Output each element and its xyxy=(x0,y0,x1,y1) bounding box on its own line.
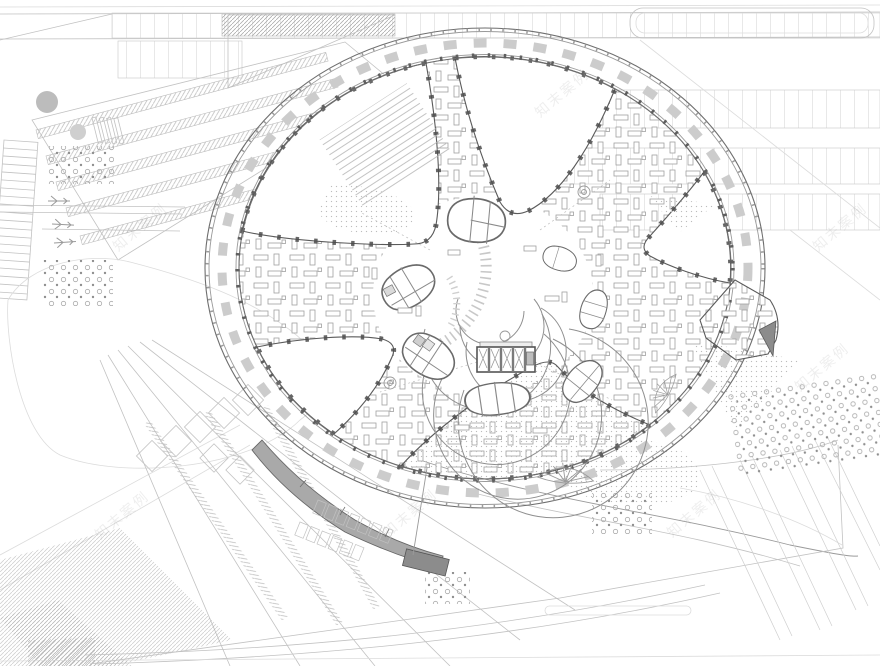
tree-grid xyxy=(43,260,113,306)
tree-canopy-circle xyxy=(36,91,58,113)
tree-grid xyxy=(48,146,114,184)
floor-plan-drawing: 知末案例 知末案例 知末案例 知末案例 知末案例 知末案例 知末案例 xyxy=(0,0,880,666)
core-shaft xyxy=(527,352,534,365)
elevator-core xyxy=(477,342,535,372)
tree-canopy-circle xyxy=(70,124,86,140)
site-plan-page: { "watermark": { "text": "知末案例" }, "pale… xyxy=(0,0,880,666)
gridded-block xyxy=(118,41,242,78)
tree-cluster xyxy=(425,572,470,604)
